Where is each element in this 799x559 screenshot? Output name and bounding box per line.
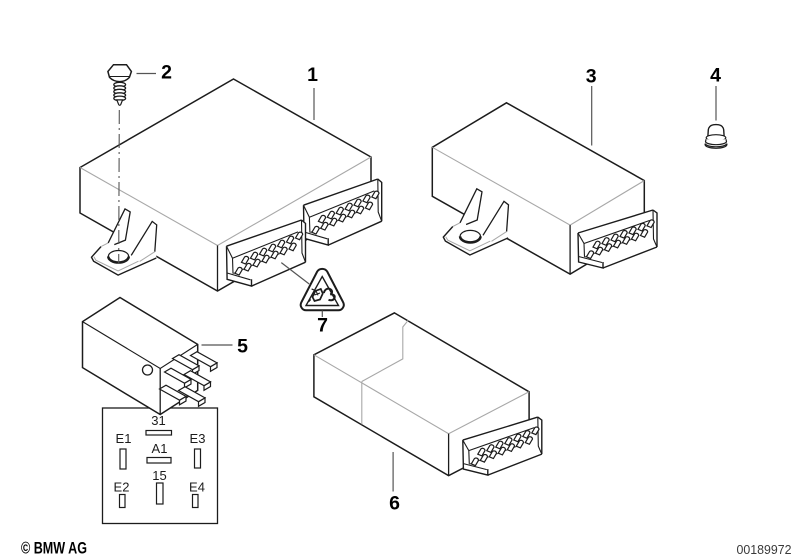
svg-text:E2: E2 xyxy=(114,480,130,495)
svg-text:31: 31 xyxy=(151,413,165,428)
svg-text:6: 6 xyxy=(389,493,400,515)
svg-text:15: 15 xyxy=(152,468,166,483)
svg-text:E4: E4 xyxy=(189,480,205,495)
svg-text:E1: E1 xyxy=(116,431,132,446)
svg-text:A1: A1 xyxy=(152,441,168,456)
svg-text:4: 4 xyxy=(710,65,721,87)
svg-text:1: 1 xyxy=(307,64,318,86)
svg-text:5: 5 xyxy=(237,336,248,358)
svg-text:3: 3 xyxy=(586,66,597,88)
svg-text:2: 2 xyxy=(161,62,172,84)
svg-text:© BMW AG: © BMW AG xyxy=(21,540,87,558)
svg-text:7: 7 xyxy=(317,315,328,337)
svg-text:00189972: 00189972 xyxy=(737,542,792,557)
svg-text:E3: E3 xyxy=(190,431,206,446)
